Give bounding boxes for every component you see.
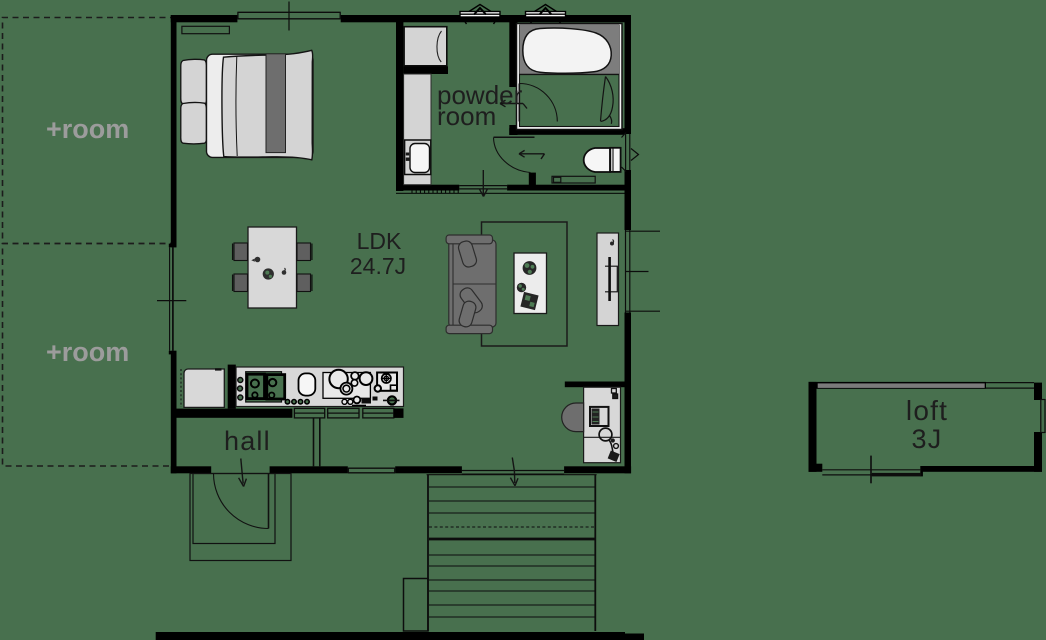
svg-text:+room: +room [46, 337, 129, 367]
svg-text:3J: 3J [912, 424, 943, 454]
svg-text:hall: hall [224, 426, 271, 456]
svg-text:loft: loft [906, 395, 948, 426]
svg-text:LDK: LDK [357, 228, 402, 254]
svg-text:+room: +room [46, 114, 129, 144]
svg-text:24.7J: 24.7J [350, 253, 406, 279]
svg-text:room: room [437, 101, 496, 131]
